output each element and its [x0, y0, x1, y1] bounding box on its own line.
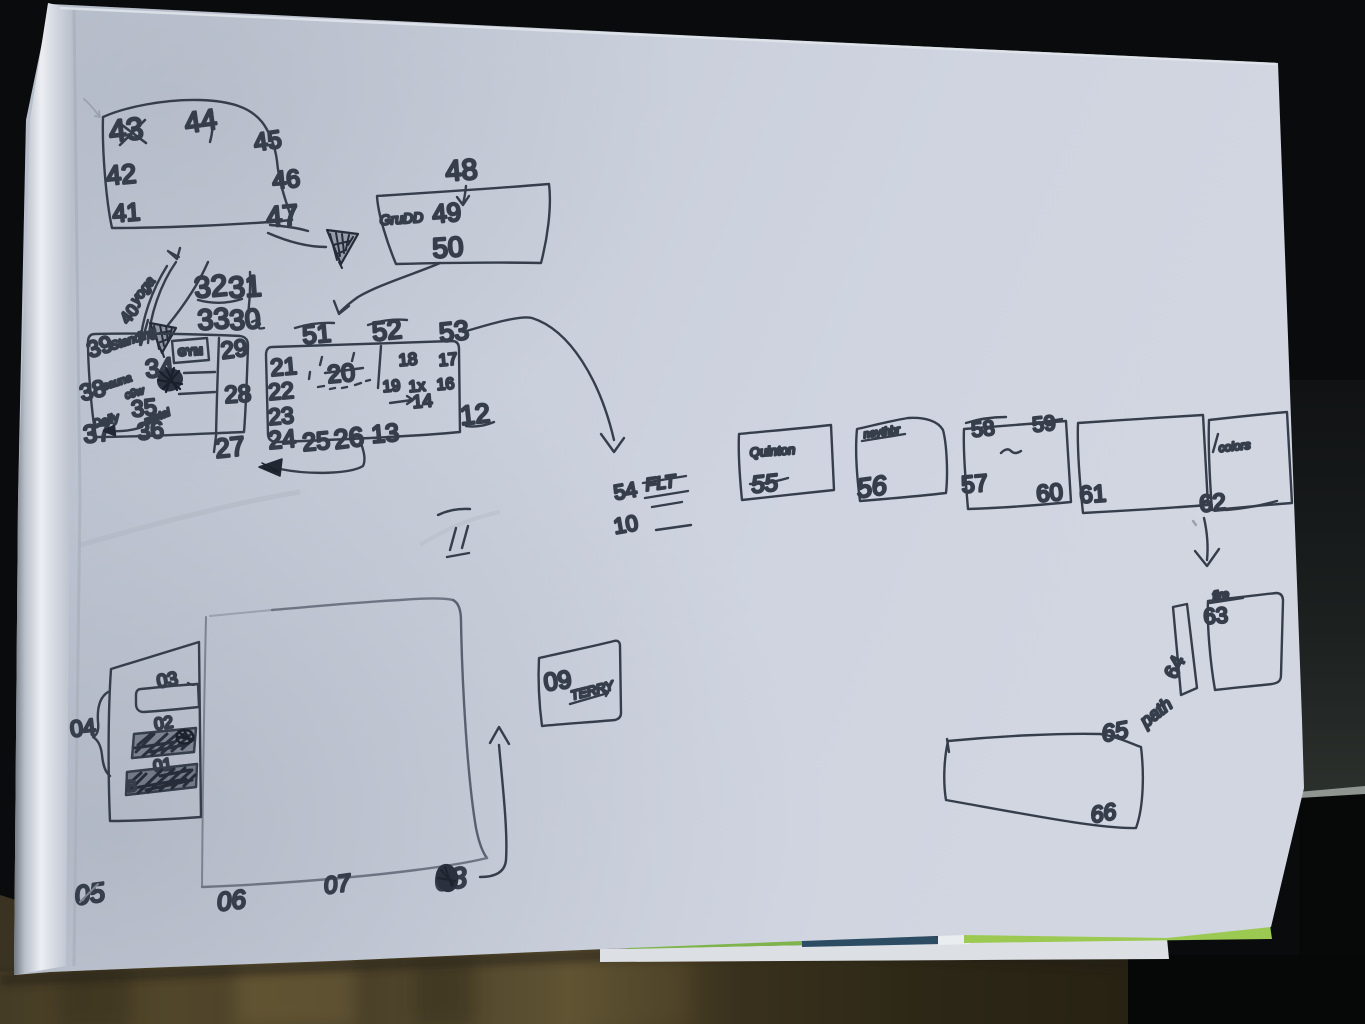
svg-text:24: 24 — [267, 425, 297, 455]
svg-text:13: 13 — [370, 419, 400, 449]
svg-text:14: 14 — [412, 390, 434, 412]
svg-text:05: 05 — [73, 877, 108, 911]
svg-text:20: 20 — [326, 359, 356, 389]
svg-text:17: 17 — [438, 349, 459, 370]
svg-text:57: 57 — [960, 470, 989, 499]
svg-text:63: 63 — [1203, 602, 1229, 629]
svg-text:45: 45 — [252, 125, 283, 157]
svg-text:28: 28 — [224, 380, 253, 409]
svg-text:42: 42 — [105, 158, 138, 191]
svg-text:54: 54 — [612, 478, 639, 505]
svg-text:GYM: GYM — [178, 346, 204, 359]
svg-text:50: 50 — [431, 231, 464, 264]
svg-text:31: 31 — [227, 270, 263, 305]
svg-text:07: 07 — [322, 869, 354, 900]
svg-text:18: 18 — [398, 349, 419, 370]
svg-text:29: 29 — [219, 334, 249, 364]
svg-text:10: 10 — [612, 510, 640, 539]
svg-text:33: 33 — [196, 303, 230, 337]
svg-text:06: 06 — [215, 884, 248, 917]
svg-text:19: 19 — [382, 377, 401, 395]
svg-text:03: 03 — [155, 669, 179, 693]
svg-text:Quinton: Quinton — [749, 442, 795, 460]
svg-text:36: 36 — [136, 416, 165, 446]
svg-text:47: 47 — [265, 199, 300, 234]
svg-text:41: 41 — [111, 198, 141, 228]
svg-text:56: 56 — [855, 470, 890, 504]
svg-text:16: 16 — [436, 375, 455, 393]
svg-text:26: 26 — [332, 422, 365, 455]
svg-text:27: 27 — [213, 431, 246, 464]
svg-text:43: 43 — [107, 111, 145, 149]
svg-text:61: 61 — [1079, 480, 1108, 509]
svg-text:60: 60 — [1035, 479, 1064, 508]
svg-text:25: 25 — [301, 427, 331, 457]
svg-text:62: 62 — [1198, 489, 1227, 518]
svg-text:49: 49 — [431, 197, 462, 229]
svg-text:GruDD: GruDD — [379, 209, 424, 228]
svg-text:66: 66 — [1088, 798, 1118, 828]
svg-text:09: 09 — [542, 665, 573, 697]
svg-text:48: 48 — [444, 154, 478, 188]
svg-text:65: 65 — [1099, 717, 1131, 748]
svg-text:46: 46 — [271, 165, 301, 195]
svg-text:22: 22 — [267, 377, 295, 405]
